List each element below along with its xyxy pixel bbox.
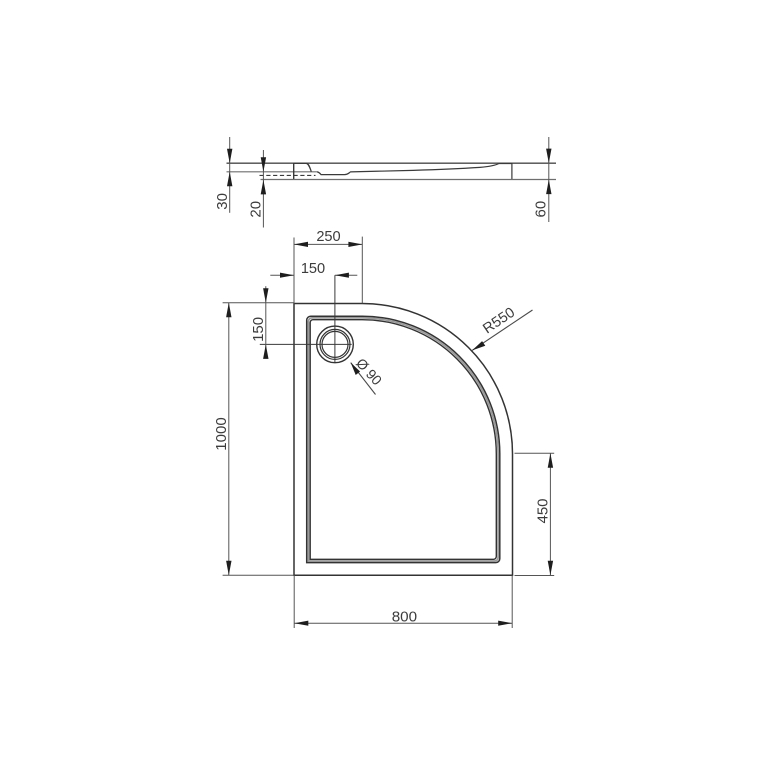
svg-text:1000: 1000 (213, 417, 230, 450)
svg-text:30: 30 (214, 193, 231, 210)
svg-text:250: 250 (316, 229, 340, 245)
svg-text:450: 450 (535, 498, 552, 523)
svg-text:800: 800 (392, 609, 417, 626)
svg-text:150: 150 (250, 317, 267, 342)
svg-text:150: 150 (301, 261, 325, 277)
svg-text:60: 60 (533, 201, 550, 218)
svg-text:20: 20 (248, 201, 265, 218)
